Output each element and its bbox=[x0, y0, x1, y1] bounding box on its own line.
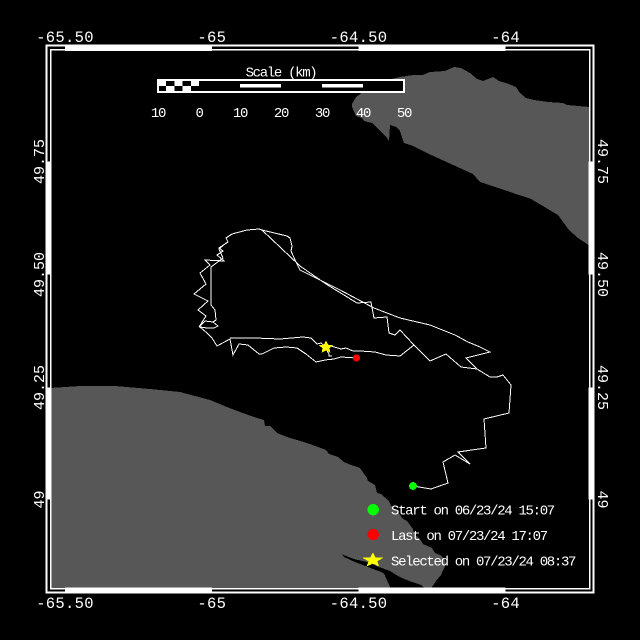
svg-text:0: 0 bbox=[195, 106, 203, 122]
svg-text:-64: -64 bbox=[491, 595, 520, 613]
svg-text:Selected on 07/23/24 08:37: Selected on 07/23/24 08:37 bbox=[391, 554, 576, 570]
svg-text:-65: -65 bbox=[197, 29, 226, 47]
svg-text:49.50: 49.50 bbox=[32, 252, 49, 297]
svg-text:10: 10 bbox=[151, 106, 166, 122]
svg-text:Start on 06/23/24 15:07: Start on 06/23/24 15:07 bbox=[391, 504, 555, 520]
svg-text:50: 50 bbox=[397, 106, 412, 122]
svg-text:49: 49 bbox=[32, 490, 49, 508]
svg-text:-65: -65 bbox=[197, 595, 226, 613]
svg-text:-64: -64 bbox=[491, 29, 520, 47]
svg-text:49.25: 49.25 bbox=[593, 365, 610, 410]
svg-text:20: 20 bbox=[274, 106, 289, 122]
svg-text:Last on 07/23/24 17:07: Last on 07/23/24 17:07 bbox=[391, 529, 548, 545]
svg-text:-65.50: -65.50 bbox=[36, 29, 94, 47]
svg-text:49.50: 49.50 bbox=[593, 252, 610, 297]
svg-text:-64.50: -64.50 bbox=[330, 595, 388, 613]
svg-text:49: 49 bbox=[593, 490, 610, 508]
svg-text:49.75: 49.75 bbox=[32, 139, 49, 184]
svg-text:30: 30 bbox=[315, 106, 330, 122]
svg-text:49.75: 49.75 bbox=[593, 139, 610, 184]
svg-text:-64.50: -64.50 bbox=[330, 29, 388, 47]
svg-text:49.25: 49.25 bbox=[32, 365, 49, 410]
svg-text:40: 40 bbox=[356, 106, 371, 122]
svg-text:-65.50: -65.50 bbox=[36, 595, 94, 613]
svg-text:10: 10 bbox=[233, 106, 248, 122]
